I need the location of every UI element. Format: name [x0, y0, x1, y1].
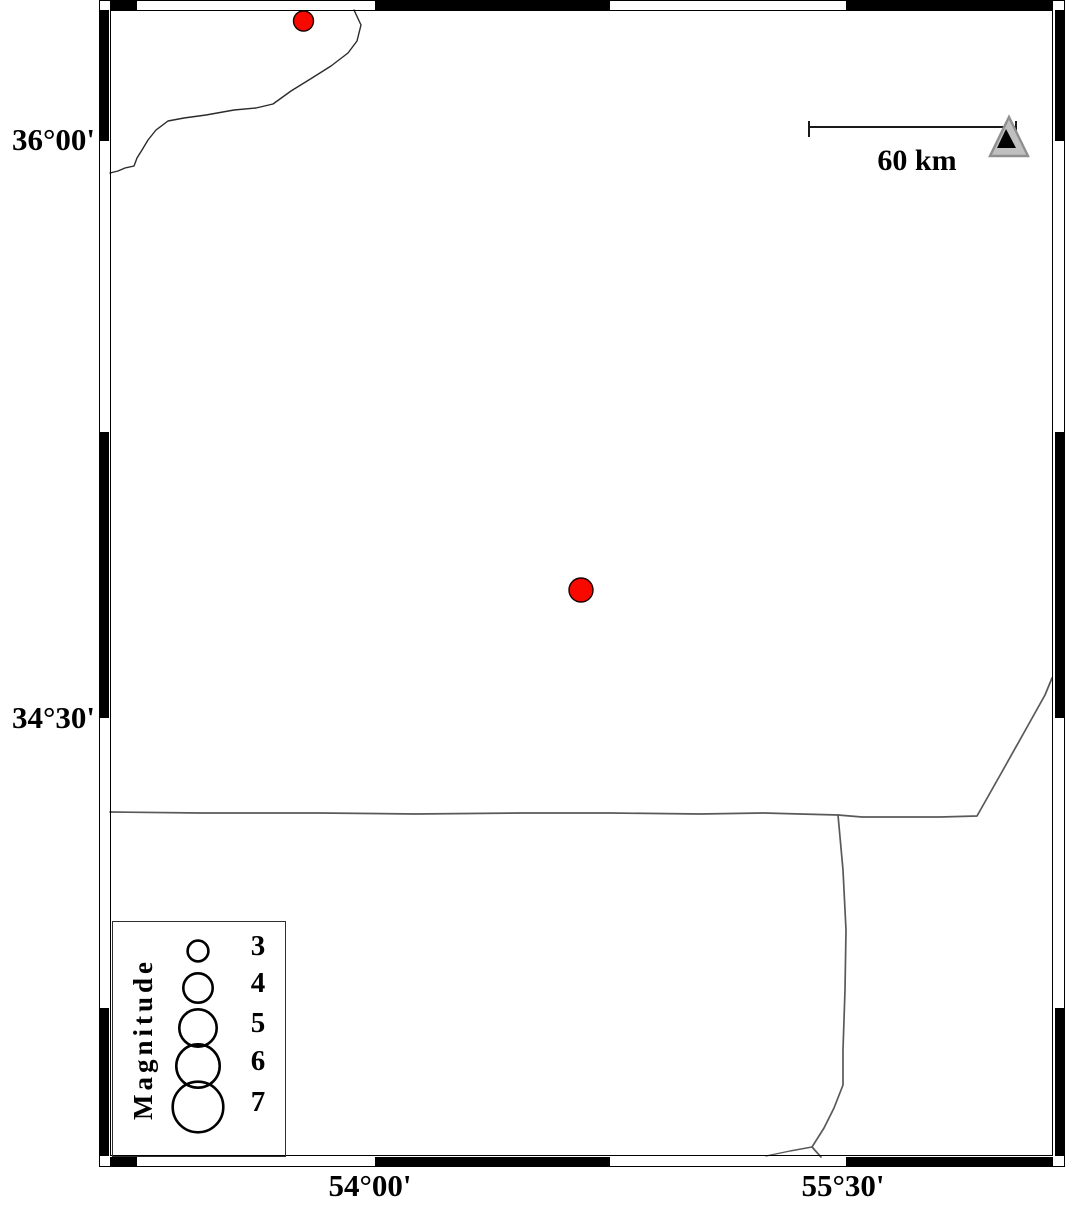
legend-title: Magnitude — [129, 919, 157, 1159]
lon-label-54-00: 54°00' — [290, 1170, 450, 1201]
lat-label-36-00: 36°00' — [0, 124, 95, 155]
frame-tick-segment — [110, 1, 137, 10]
frame-tick-segment — [1055, 10, 1064, 141]
lon-label-55-30: 55°30' — [763, 1170, 923, 1201]
legend-label-mag-6: 6 — [236, 1047, 280, 1076]
frame-tick-segment — [1055, 1008, 1064, 1156]
legend-label-mag-3: 3 — [236, 932, 280, 961]
legend-label-mag-7: 7 — [236, 1088, 280, 1117]
frame-tick-segment — [846, 1, 1053, 10]
frame-tick-segment — [100, 10, 109, 141]
frame-tick-segment — [100, 1008, 109, 1156]
lat-label-34-30: 34°30' — [0, 702, 95, 733]
seismicity-map: 36°00' 34°30' 54°00' 55°30' 60 km Magnit… — [0, 0, 1066, 1206]
frame-tick-segment — [1055, 432, 1064, 718]
legend-label-mag-4: 4 — [236, 969, 280, 998]
frame-tick-segment — [100, 432, 109, 718]
scale-bar-label: 60 km — [832, 146, 1002, 176]
frame-tick-segment — [375, 1157, 610, 1166]
frame-tick-segment — [375, 1, 610, 10]
legend-label-mag-5: 5 — [236, 1009, 280, 1038]
frame-tick-segment — [846, 1157, 1053, 1166]
